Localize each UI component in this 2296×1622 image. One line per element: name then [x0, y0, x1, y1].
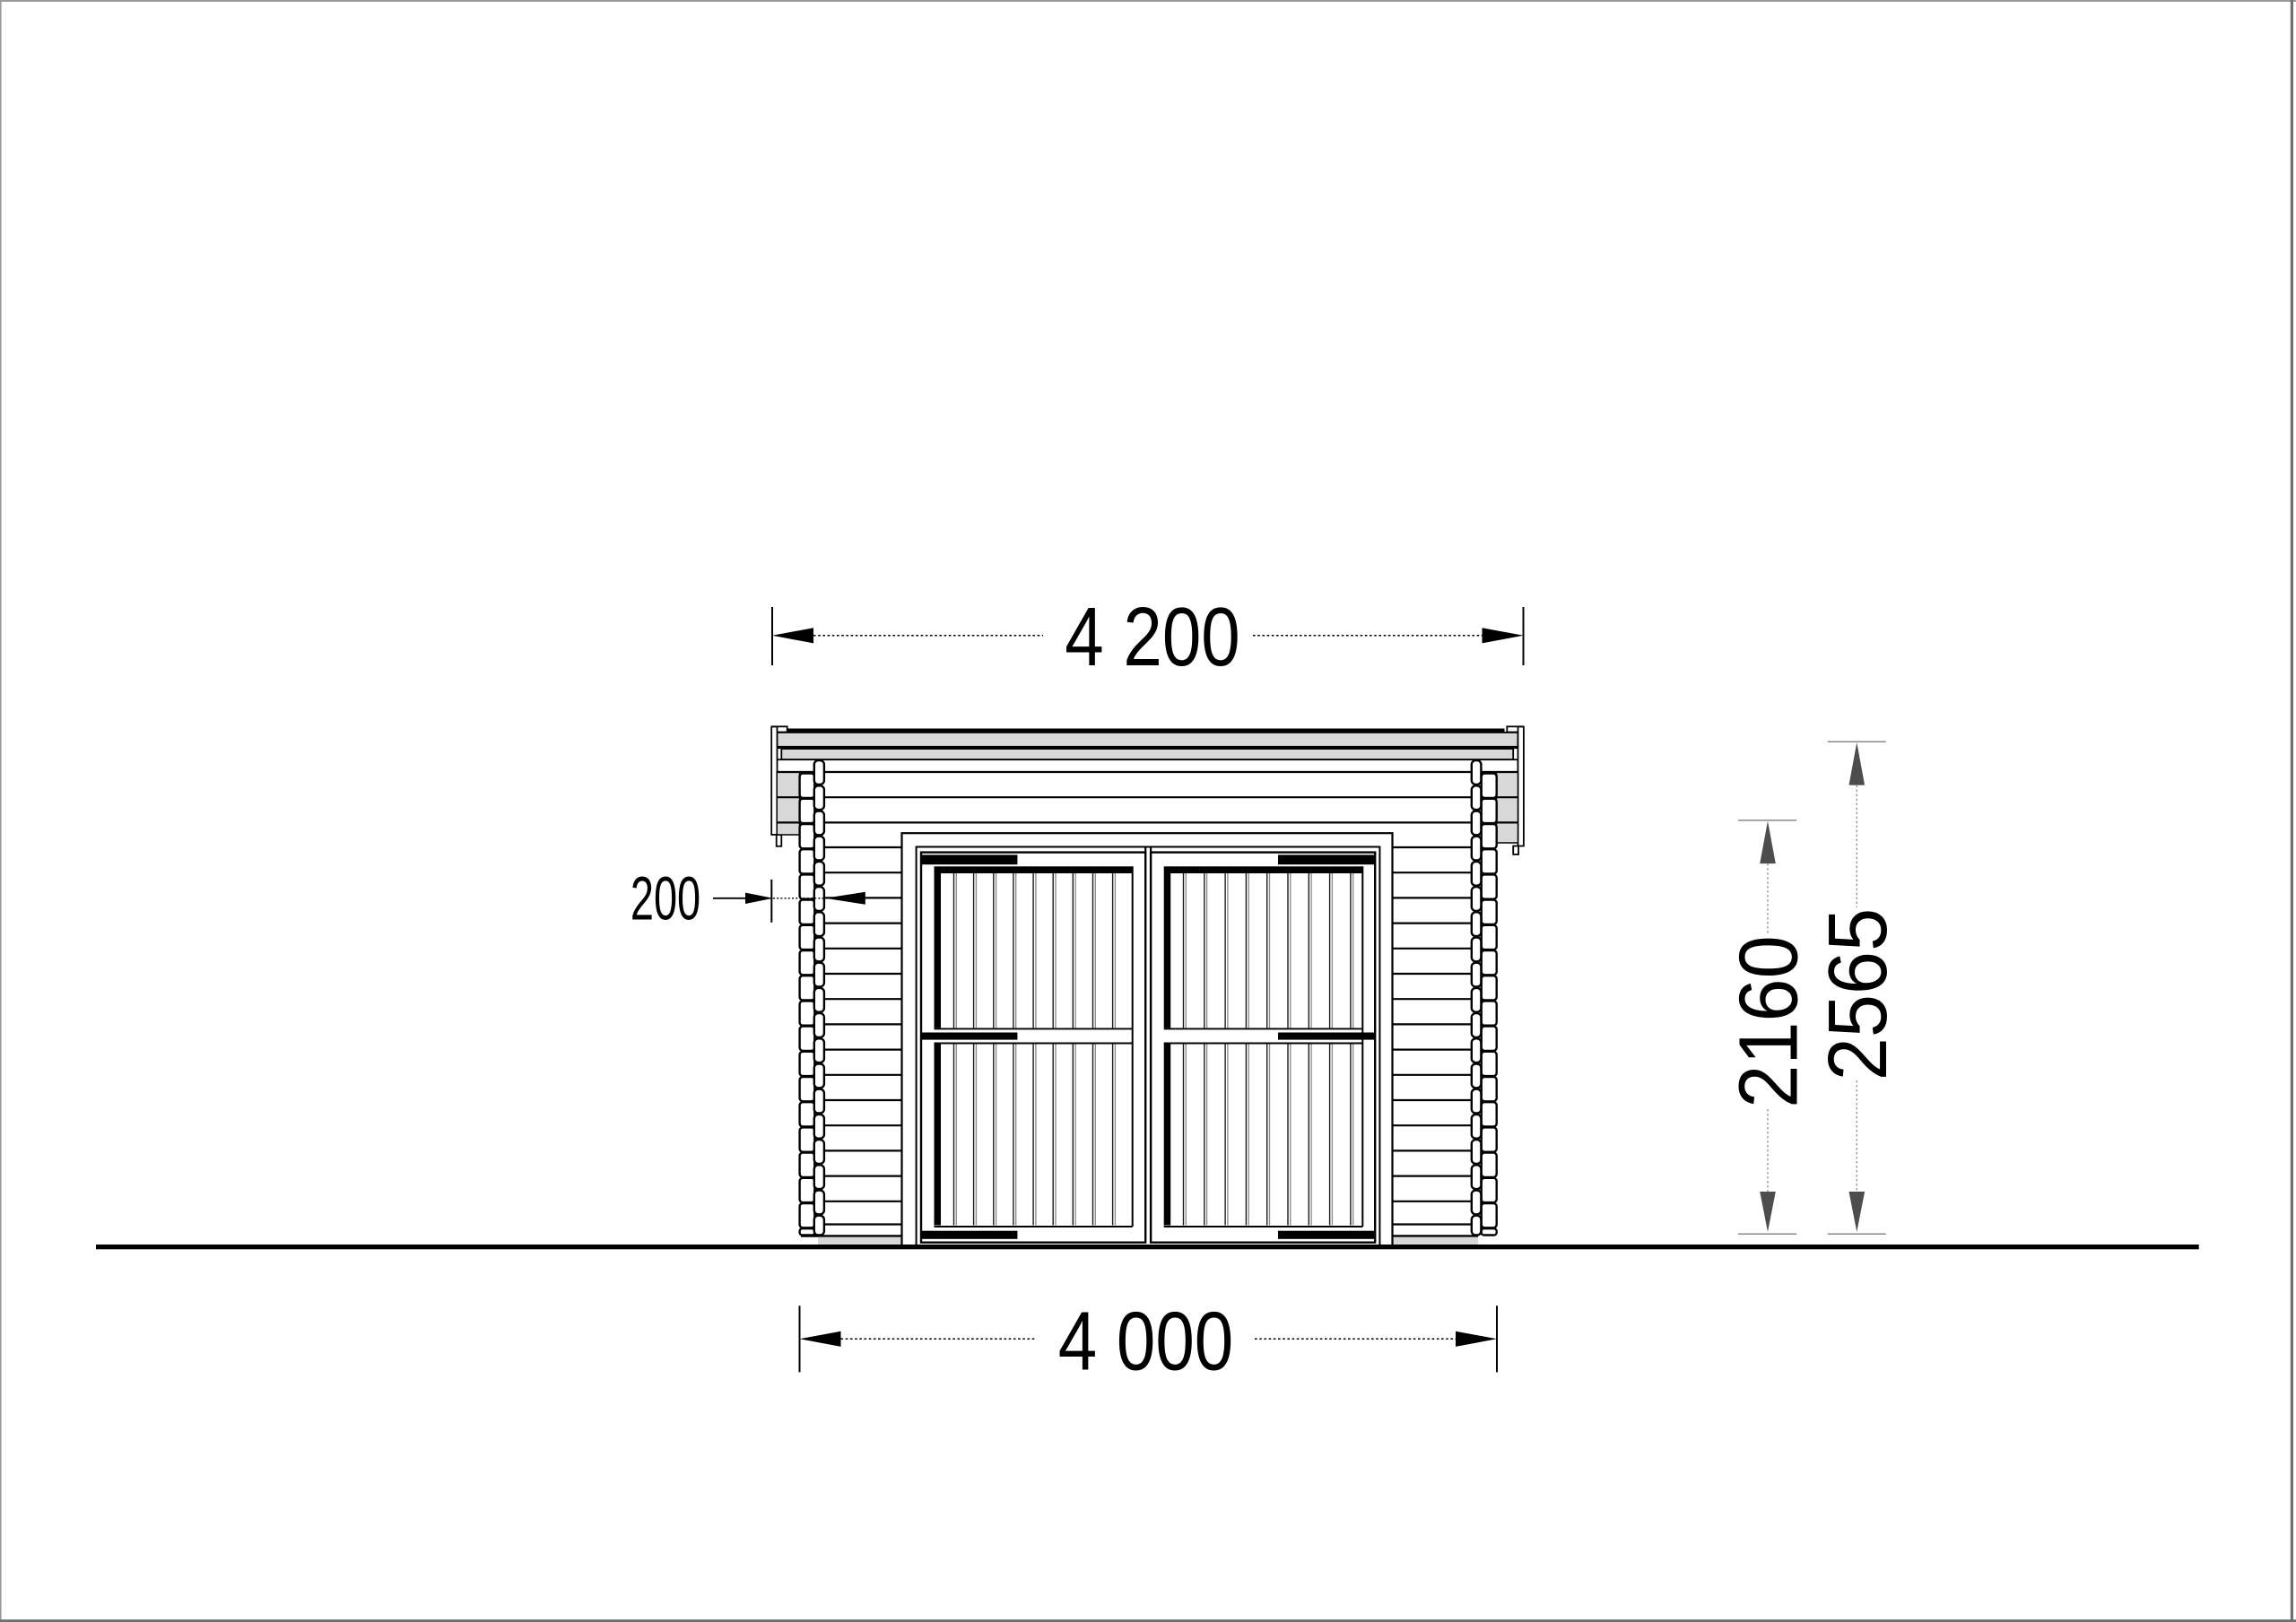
svg-text:2565: 2565 [1812, 908, 1905, 1080]
svg-text:4 200: 4 200 [1065, 591, 1239, 684]
svg-text:4 000: 4 000 [1058, 1295, 1233, 1388]
svg-text:200: 200 [631, 863, 700, 932]
svg-text:2160: 2160 [1723, 935, 1816, 1107]
